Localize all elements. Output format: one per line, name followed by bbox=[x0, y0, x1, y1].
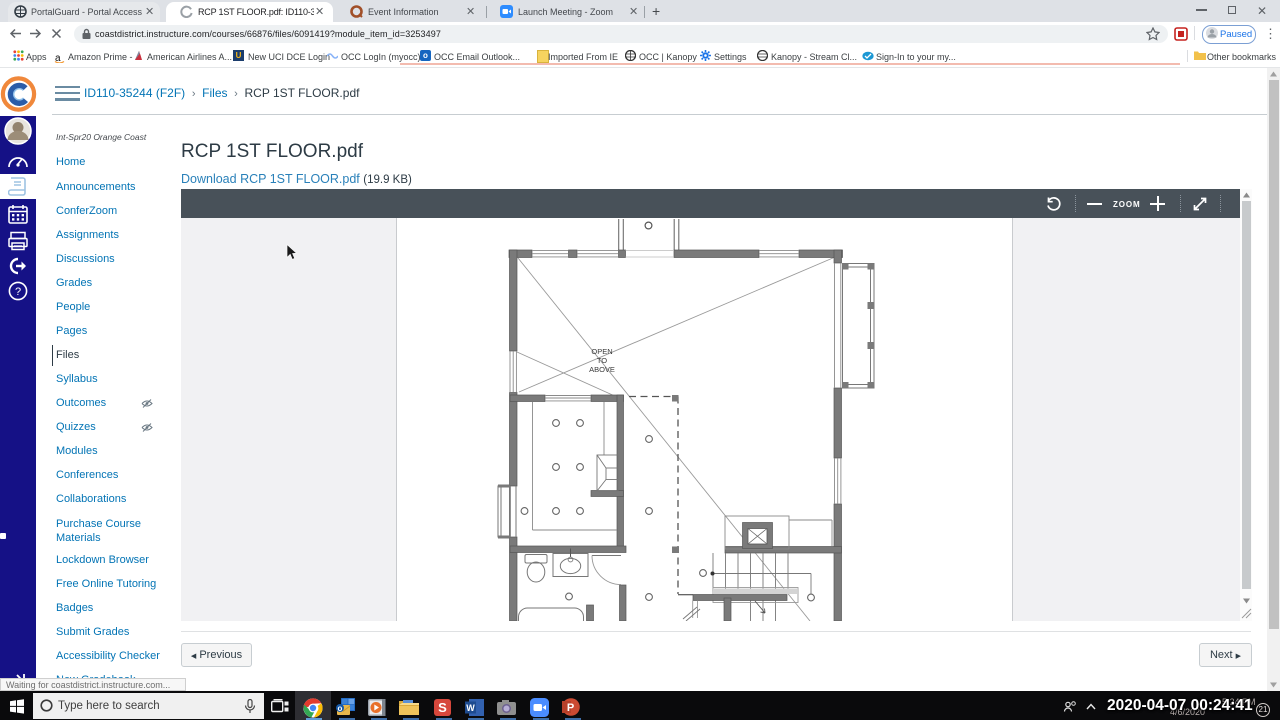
svg-text:P: P bbox=[567, 702, 574, 714]
svg-text:OPEN: OPEN bbox=[591, 347, 612, 356]
svg-text:o: o bbox=[338, 704, 343, 713]
svg-text:ABOVE: ABOVE bbox=[589, 365, 615, 374]
svg-text:W: W bbox=[466, 703, 475, 713]
svg-text:TO: TO bbox=[597, 356, 607, 365]
svg-text:?: ? bbox=[15, 286, 21, 298]
svg-text:S: S bbox=[438, 700, 447, 715]
